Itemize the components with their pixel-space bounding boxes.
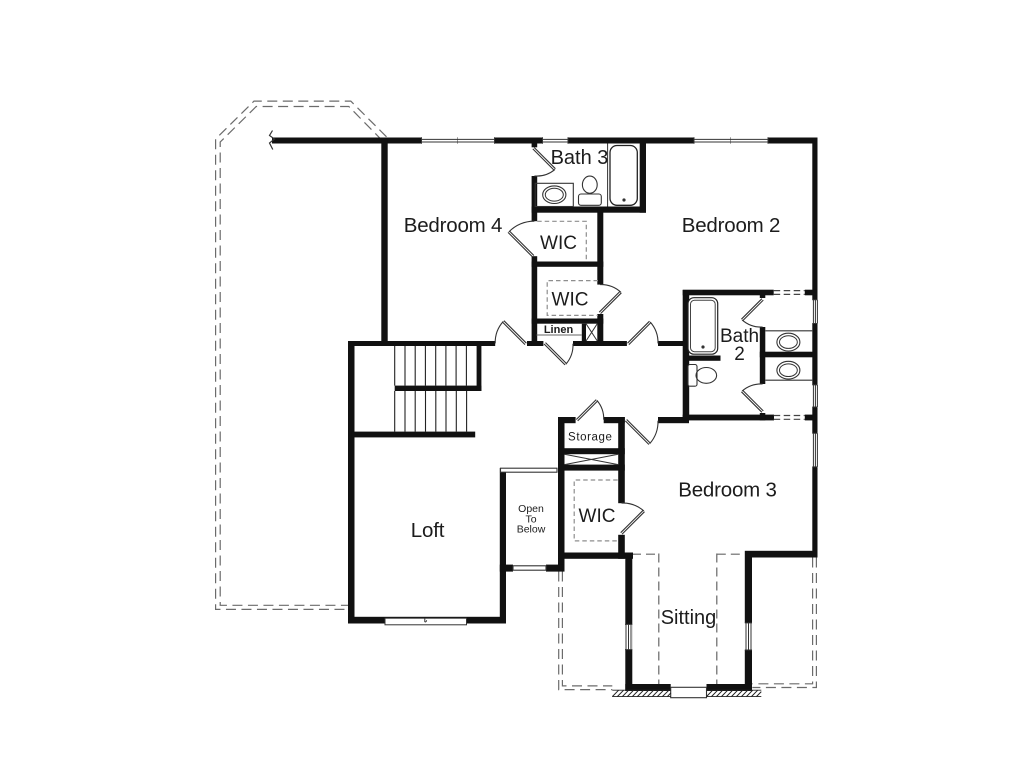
svg-text:2: 2: [734, 344, 745, 365]
svg-text:Linen: Linen: [544, 324, 574, 336]
svg-text:Loft: Loft: [411, 519, 445, 542]
svg-text:WIC: WIC: [540, 233, 577, 254]
svg-text:Below: Below: [517, 524, 546, 536]
svg-text:Bedroom 4: Bedroom 4: [404, 214, 502, 237]
svg-text:WIC: WIC: [552, 290, 589, 311]
svg-text:Bedroom 2: Bedroom 2: [682, 214, 780, 237]
svg-text:Storage: Storage: [568, 432, 612, 444]
svg-text:Sitting: Sitting: [661, 607, 717, 629]
svg-text:Bath 3: Bath 3: [551, 147, 609, 169]
svg-text:Bedroom 3: Bedroom 3: [678, 479, 776, 502]
svg-text:WIC: WIC: [579, 506, 616, 527]
